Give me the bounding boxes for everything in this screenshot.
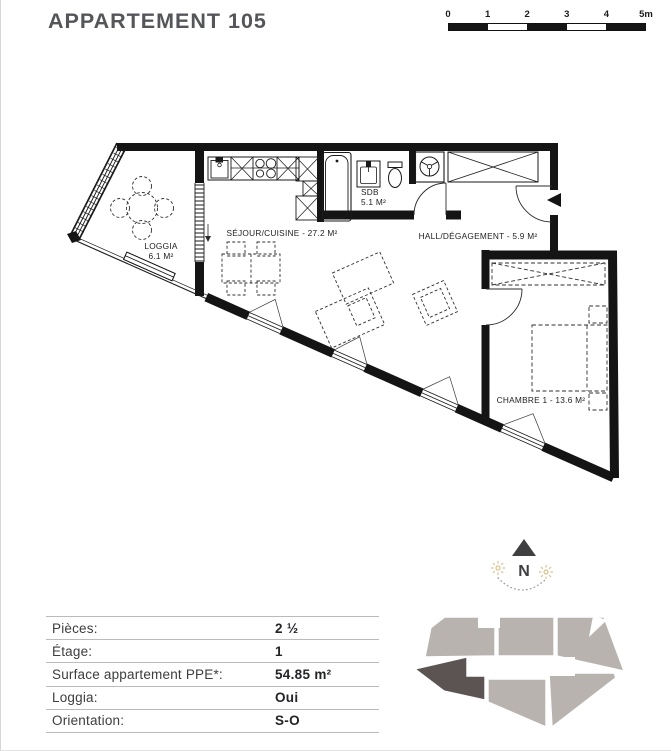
loggia-table-set: [111, 177, 174, 240]
site-unit: [498, 617, 554, 656]
compass: N: [491, 539, 553, 590]
sun-icon: [491, 561, 505, 575]
sdb-label: SDB: [361, 187, 379, 197]
site-corridor: [467, 657, 575, 676]
loggia-access-arrow: [205, 224, 211, 242]
row-label: Étage:: [46, 644, 275, 659]
row-value: 1: [275, 644, 283, 659]
row-value: 54.85 m²: [275, 667, 331, 682]
row-value: 2 ½: [275, 621, 298, 636]
washing-machine-icon: [416, 152, 445, 182]
sofa-set: [315, 252, 457, 348]
sdb-area: 5.1 M²: [361, 197, 386, 207]
north-label: N: [518, 563, 530, 580]
sun-icon: [539, 565, 553, 579]
kitchen-sink-icon: [211, 158, 228, 179]
row-label: Loggia:: [46, 690, 275, 705]
loggia-railing: [73, 236, 207, 298]
bathroom-sink-icon: [357, 161, 380, 187]
row-label: Orientation:: [46, 713, 275, 728]
table-row: Surface appartement PPE*: 54.85 m²: [46, 662, 379, 685]
row-value: Oui: [275, 690, 298, 705]
site-unit: [488, 679, 546, 727]
chambre-label: CHAMBRE 1 - 13.6 M²: [497, 395, 586, 405]
dining-set: [222, 242, 280, 295]
table-row: Étage: 1: [46, 639, 379, 662]
table-row: Orientation: S-O: [46, 709, 379, 733]
hall-wardrobe: [448, 152, 538, 182]
sejour-label: SÉJOUR/CUISINE - 27.2 M²: [226, 228, 337, 238]
site-notch: [478, 615, 500, 628]
loggia-door-glazing: [195, 183, 204, 262]
loggia-label: LOGGIA: [144, 241, 178, 251]
site-unit: [549, 673, 622, 727]
row-value: S-O: [275, 713, 300, 728]
floorplan-sheet: APPARTEMENT 105 0 1 2 3 4 5m: [0, 0, 671, 751]
table-row: Loggia: Oui: [46, 686, 379, 709]
apartment-details-table: Pièces: 2 ½ Étage: 1 Surface appartement…: [46, 616, 379, 733]
toilet-icon: [388, 162, 402, 188]
row-label: Pièces:: [46, 621, 275, 636]
loggia-area: 6.1 M²: [148, 251, 173, 261]
table-row: Pièces: 2 ½: [46, 616, 379, 639]
north-arrow-icon: [512, 539, 536, 556]
bedroom-furniture: [492, 263, 607, 410]
window-swings: [250, 299, 545, 443]
building-site-map: [415, 615, 625, 727]
entrance-arrow-icon: [547, 193, 561, 207]
hall-label: HALL/DÉGAGEMENT - 5.9 M²: [419, 231, 538, 241]
loggia-glazing: [70, 143, 126, 240]
row-label: Surface appartement PPE*:: [46, 667, 275, 682]
